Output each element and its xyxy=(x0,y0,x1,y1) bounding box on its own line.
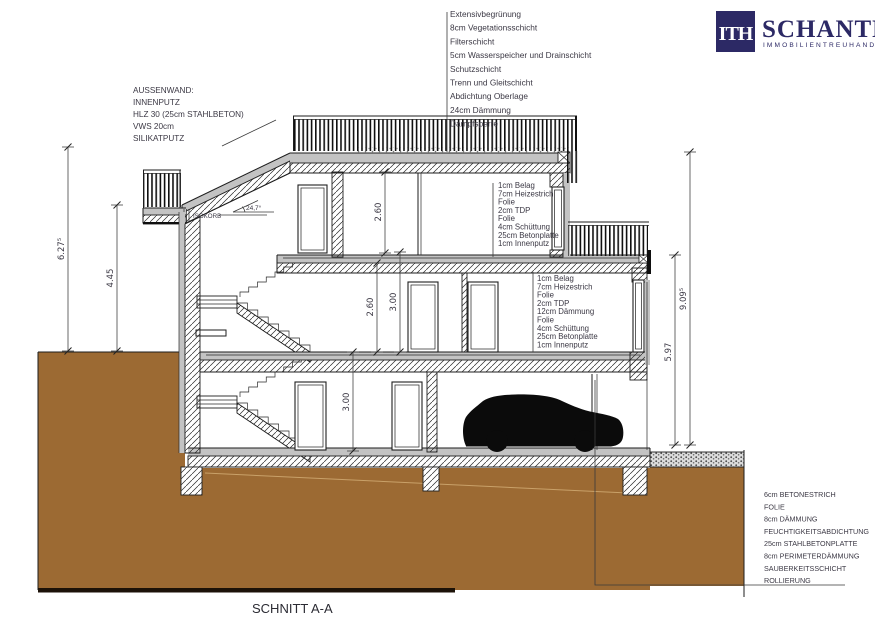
middle-floor-right-window xyxy=(633,280,644,352)
terrain-left xyxy=(38,352,185,590)
mid-floor-buildup-list: 1cm Belag 7cm Heizestrich Folie 2cm TDP … xyxy=(537,274,598,349)
drawing-sheet: Extensivbegrünung 8cm Vegetationsschicht… xyxy=(0,0,875,623)
roof-layer-label: 5cm Wasserspeicher und Drainschicht xyxy=(450,50,592,60)
dim-label: 6.27⁵ xyxy=(57,238,67,260)
foundation-layer-label: ROLLIERUNG xyxy=(764,576,811,585)
roof-layer-label: Filterschicht xyxy=(450,36,495,46)
wall-layer-label: VWS 20cm xyxy=(133,122,174,131)
balcony-drain-box xyxy=(639,255,648,263)
isokorb-label: ISOKORB xyxy=(193,213,221,220)
foundation-layer-label: SAUBERKEITSSCHICHT xyxy=(764,564,847,573)
company-logo: ITH SCHANTL IMMOBILIENTREUHAND xyxy=(716,11,875,52)
stair-landing-upper xyxy=(197,296,237,308)
foundation-layer-label: 25cm STAHLBETONPLATTE xyxy=(764,539,858,548)
terrain-bottom-line xyxy=(38,588,455,593)
balcony-corner-post xyxy=(647,250,651,274)
dim-label: 4.45 xyxy=(106,269,116,288)
top-floor-right-sill xyxy=(550,250,563,257)
dim-label: 2.60 xyxy=(366,298,376,317)
roof-layer-label: 24cm Dämmung xyxy=(450,105,511,115)
wall-layer-label: AUSSENWAND: xyxy=(133,86,194,95)
terrain-right xyxy=(650,467,744,586)
logo-mark-text: ITH xyxy=(719,23,754,45)
drawing-title: SCHNITT A-A xyxy=(252,601,333,616)
foundation-layer-label: 6cm BETONESTRICH xyxy=(764,490,836,499)
left-balcony-railing xyxy=(143,170,181,208)
floor-layer-label: 1cm Innenputz xyxy=(498,239,549,248)
ground-floor-door-1 xyxy=(295,382,326,450)
wall-layer-label: SILIKATPUTZ xyxy=(133,134,184,143)
middle-floor-door-1 xyxy=(408,282,438,352)
dim-label: 3.00 xyxy=(389,293,399,312)
gravel-strip-texture xyxy=(650,452,744,467)
wall-layer-label: INNENPUTZ xyxy=(133,98,180,107)
exterior-wall-left xyxy=(179,212,200,453)
wall-layer-label: HLZ 30 (25cm STAHLBETON) xyxy=(133,110,244,119)
dim-label: 2.60 xyxy=(374,203,384,222)
ground-floor-partition xyxy=(427,372,437,452)
stair-landing-lower xyxy=(197,396,237,408)
foundation-layer-label: 8cm DÄMMUNG xyxy=(764,515,818,524)
roof-layer-label: Trenn und Gleitschicht xyxy=(450,78,533,88)
terrace-railing-side xyxy=(566,151,578,183)
foundation-layer-label: FEUCHTIGKEITSABDICHTUNG xyxy=(764,527,869,536)
foundation-layer-label: FOLIE xyxy=(764,502,785,511)
top-floor-left-wall xyxy=(332,172,343,257)
dim-label: 9.09⁵ xyxy=(679,288,689,310)
floor-layer-label: 1cm Innenputz xyxy=(537,340,588,349)
roof-layer-label: Dampfsperre xyxy=(450,119,498,129)
roof-layer-label: Schutzschicht xyxy=(450,64,502,74)
dim-label: 3.00 xyxy=(342,393,352,412)
roof-angle-label: 24,7° xyxy=(246,204,262,212)
foundation-layer-label: 8cm PERIMETERDÄMMUNG xyxy=(764,552,860,561)
roof-layer-label: 8cm Vegetationsschicht xyxy=(450,23,538,33)
ground-floor-door-2 xyxy=(392,382,422,450)
slab-edge-right xyxy=(630,352,647,380)
right-facade-strip-mid xyxy=(645,280,650,365)
balcony-edge-line xyxy=(143,222,184,224)
logo-tagline: IMMOBILIENTREUHAND xyxy=(763,42,875,49)
terrain-under-building xyxy=(185,468,650,590)
dim-label: 5.97 xyxy=(664,343,674,362)
middle-floor-door-2 xyxy=(468,282,498,352)
roof-layer-label: Extensivbegrünung xyxy=(450,9,521,19)
top-floor-right-window xyxy=(552,187,564,250)
top-floor-right-wall-head xyxy=(550,173,563,187)
stair-rail-detail xyxy=(196,330,226,336)
stairwell-window xyxy=(298,185,327,253)
logo-company-name: SCHANTL xyxy=(762,16,875,43)
middle-floor-partition xyxy=(462,273,467,352)
roof-layer-label: Abdichtung Oberlage xyxy=(450,91,528,101)
